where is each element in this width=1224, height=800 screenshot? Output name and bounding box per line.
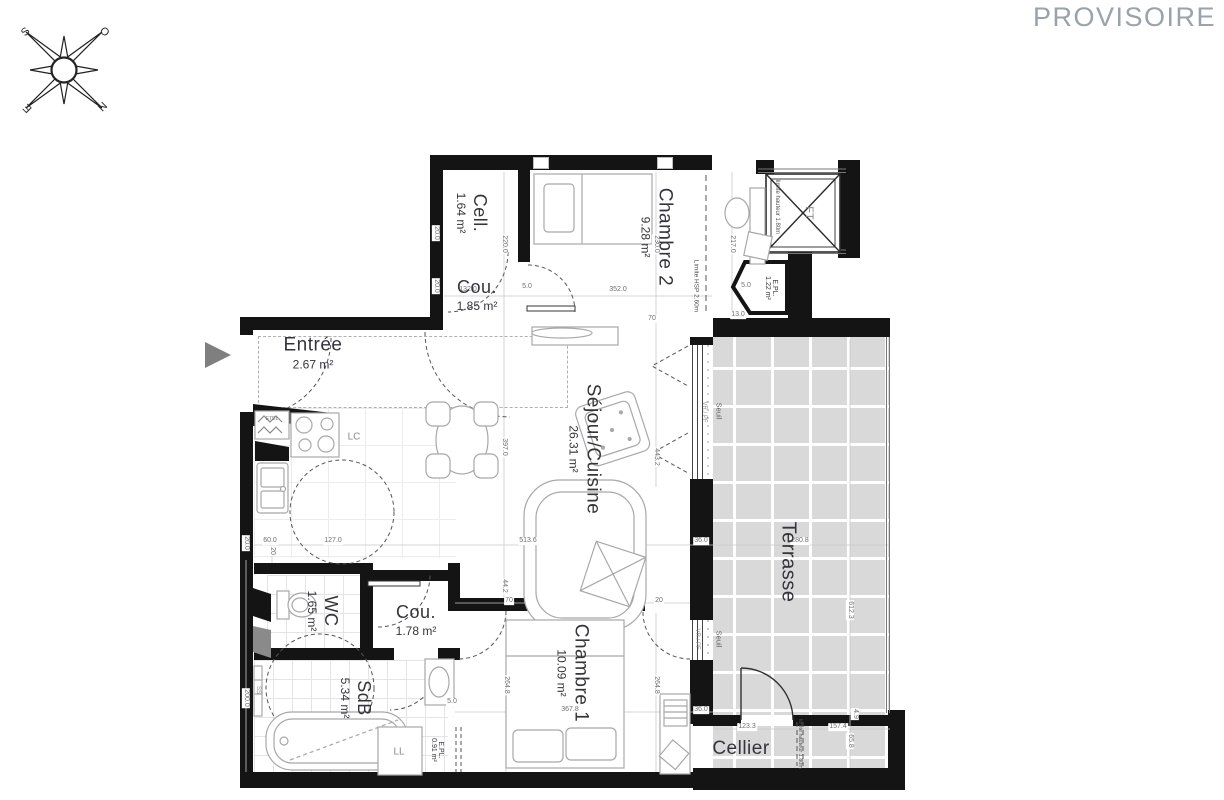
dim: 5.0 — [521, 283, 533, 291]
dim: 20 — [268, 546, 276, 556]
etel-panel-label: ETEL — [266, 416, 279, 422]
dim: 70 — [647, 315, 657, 323]
dim: 20.0 — [432, 225, 440, 241]
dim: 4.9 — [851, 708, 859, 720]
dim: 36.0 — [693, 706, 709, 714]
limite-hsp-label: Limite HSP 2.60m — [693, 260, 700, 312]
room-label-entree: Entrée 2.67 m² — [284, 335, 343, 372]
dim: 36.0 — [693, 537, 709, 545]
dim: 443.2 — [652, 447, 660, 467]
room-label-cou1: Cou. 1.85 m² — [457, 277, 498, 313]
ll-appliance-label: LL — [393, 747, 404, 758]
room-label-cell: Cell. 1.64 m² — [454, 193, 490, 234]
seuil-label-chambre1: Seuil — [715, 631, 724, 648]
ft-shaft-label: FT — [803, 206, 815, 219]
seuil-label-sejour: Seuil — [715, 403, 724, 420]
floorplan-page: PROVISOIRE S O E N — [0, 0, 1224, 800]
dim: 60.0 — [262, 537, 278, 545]
vr-pf-label-sejour: VR / PF — [701, 401, 707, 422]
dim: 44.2 — [500, 578, 508, 594]
windows-glazing — [693, 345, 709, 660]
compass-icon — [26, 32, 102, 108]
dim: 20 — [654, 597, 664, 605]
room-label-cou2: Cou. 1.78 m² — [396, 602, 437, 638]
room-label-wc: WC 1.65 m² — [305, 591, 341, 632]
dim: 13.0 — [730, 311, 746, 319]
dim: 612.3 — [846, 600, 854, 620]
dim: 513.6 — [518, 537, 538, 545]
dim: 127.0 — [323, 537, 343, 545]
dim: 123.3 — [737, 723, 757, 731]
dim: 5.0 — [446, 698, 458, 706]
dim: 70 — [504, 597, 514, 605]
dim: 220.0 — [500, 234, 508, 254]
dim: 20.0 — [242, 535, 250, 551]
dim: 264.8 — [652, 675, 660, 695]
room-label-sdb: SdB 5.34 m² — [338, 678, 374, 719]
limite-hauteur-label-ft: limite hauteur 1.80m — [774, 180, 780, 234]
dim: 20.0 — [432, 278, 440, 294]
ss-radiator-label: SS — [255, 686, 261, 694]
dim: 5.0 — [740, 282, 752, 290]
dim: 157.4 — [828, 723, 848, 731]
room-label-epl-chambre2: E.PL. 1.22 m² — [764, 276, 778, 300]
dim: 397.0 — [500, 437, 508, 457]
room-label-cellier: Cellier — [712, 738, 769, 760]
provisoire-watermark: PROVISOIRE — [1033, 2, 1216, 33]
dim: 200.0 — [242, 688, 250, 708]
room-label-chambre1: Chambre 1 10.09 m² — [555, 624, 592, 723]
dim: 264.8 — [502, 675, 510, 695]
room-label-epl-sdb: E.PL. 0.91 m² — [430, 738, 444, 762]
room-label-terrasse: Terrasse — [777, 522, 800, 603]
plan-linework — [0, 0, 1224, 800]
entrance-arrow-icon — [205, 342, 231, 368]
vr-pf-label-chambre1: VR / PF — [694, 628, 700, 649]
dim: 352.0 — [608, 286, 628, 294]
room-label-chambre2: Chambre 2 9.28 m² — [639, 188, 676, 287]
limite-hauteur-label-cellier: limite hauteur 1.80m — [797, 719, 803, 769]
dim: 217.0 — [728, 234, 736, 254]
lc-appliance-label: LC — [348, 432, 361, 443]
room-label-sejour: Séjour/Cuisine 26.31 m² — [567, 384, 604, 515]
dim: 65.8 — [846, 733, 854, 749]
